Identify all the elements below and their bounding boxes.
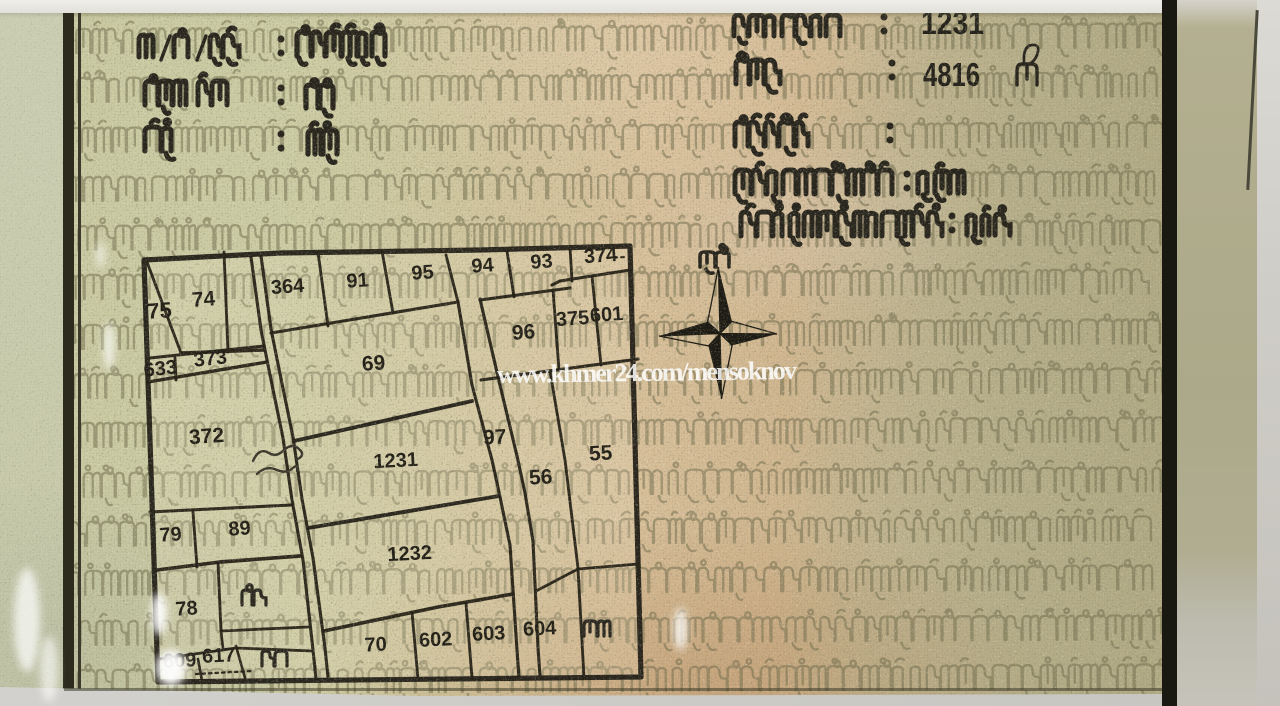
svg-text:www.khmer24.com/mensoknov: www.khmer24.com/mensoknov	[497, 356, 797, 389]
